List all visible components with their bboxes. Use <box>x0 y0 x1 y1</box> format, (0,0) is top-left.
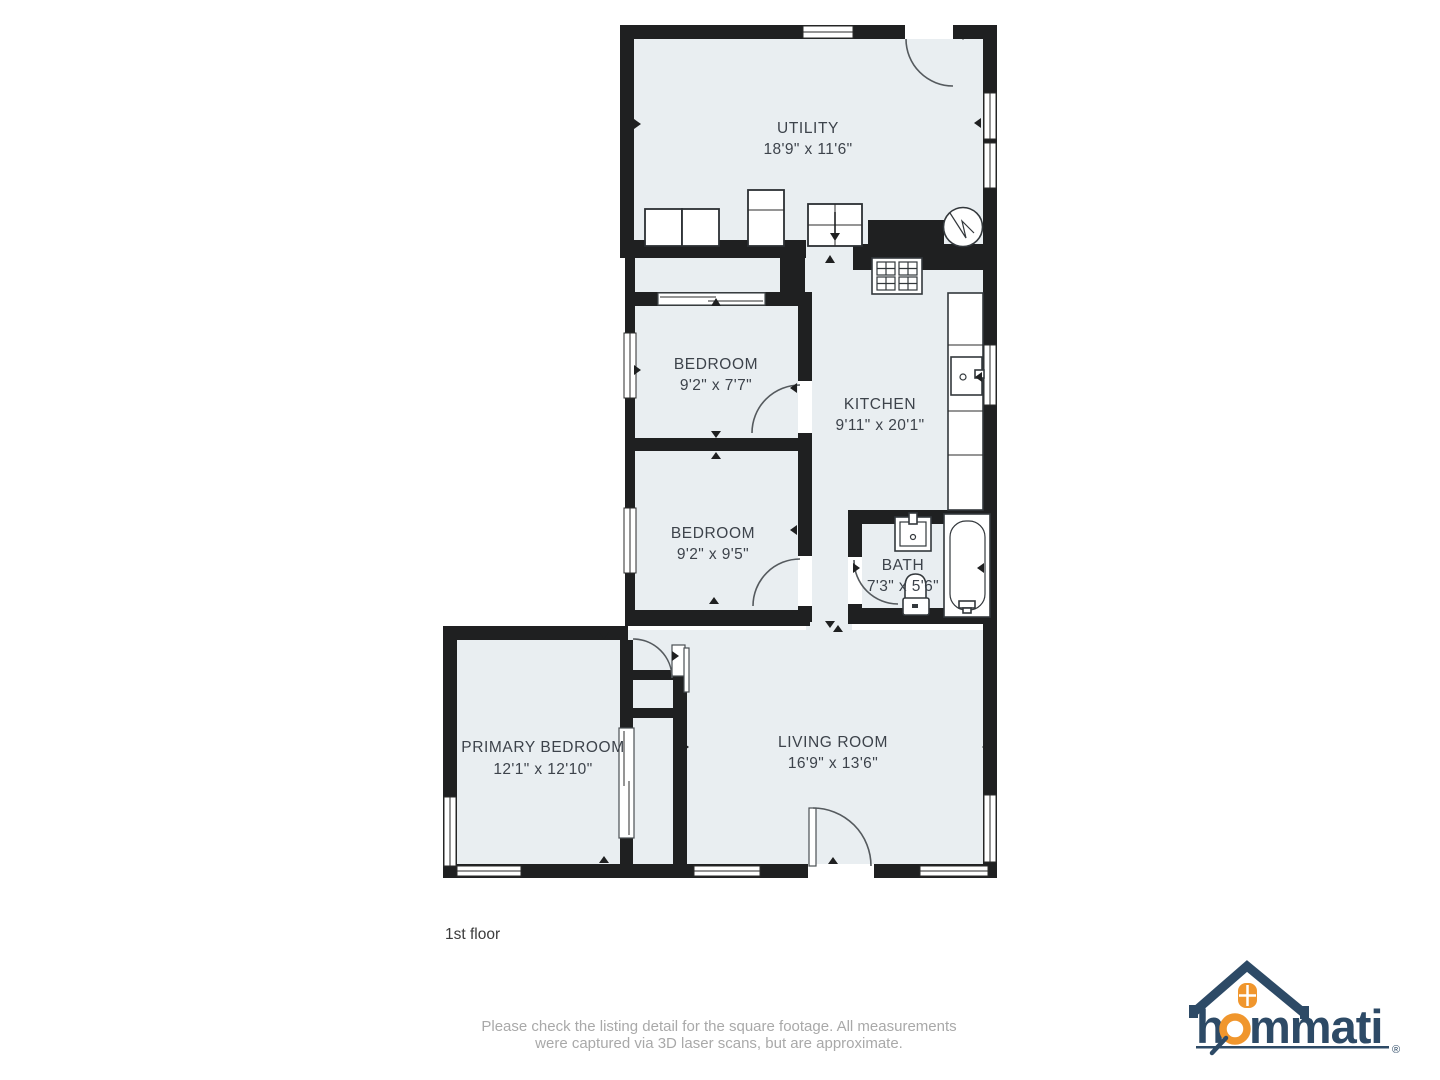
room-dims-kitchen: 9'11" x 20'1" <box>835 417 924 434</box>
kitchen-counter <box>948 293 983 510</box>
floor-plan-page: UTILITY 18'9" x 11'6" BEDROOM 9'2" x 7'7… <box>0 0 1440 1080</box>
room-label-kitchen: KITCHEN <box>844 396 916 413</box>
window <box>803 26 853 38</box>
window <box>920 866 988 876</box>
bath-sink <box>895 513 931 551</box>
stairs <box>808 204 862 246</box>
room-dims-bath: 7'3" x 5'6" <box>867 578 939 595</box>
room-label-living-room: LIVING ROOM <box>778 734 888 751</box>
logo-text-mmati: mmati <box>1249 1000 1382 1053</box>
refrigerator <box>748 190 784 246</box>
dryer <box>682 209 719 246</box>
room-label-utility: UTILITY <box>777 120 839 137</box>
room-dims-bedroom-1: 9'2" x 7'7" <box>680 377 752 394</box>
hallway-sliding-door <box>658 293 765 305</box>
room-label-bedroom-1: BEDROOM <box>674 356 758 373</box>
floor-label: 1st floor <box>445 926 500 943</box>
window <box>984 345 996 405</box>
room-label-bedroom-2: BEDROOM <box>671 525 755 542</box>
room-dims-primary-bedroom: 12'1" x 12'10" <box>493 761 592 778</box>
window <box>984 143 996 188</box>
room-dims-living-room: 16'9" x 13'6" <box>788 755 878 772</box>
hommati-logo: h mmati ® <box>1189 966 1400 1056</box>
stove <box>872 258 922 294</box>
window <box>984 795 996 862</box>
room-label-bath: BATH <box>882 557 925 574</box>
window <box>624 508 636 573</box>
washer <box>645 209 682 246</box>
floor-plan-svg: UTILITY 18'9" x 11'6" BEDROOM 9'2" x 7'7… <box>0 0 1440 1080</box>
disclaimer-line-1: Please check the listing detail for the … <box>481 1018 956 1035</box>
water-heater <box>944 208 983 247</box>
window <box>984 93 996 139</box>
utility-counter-dark <box>868 220 944 246</box>
disclaimer: Please check the listing detail for the … <box>481 1018 956 1052</box>
window <box>444 797 456 866</box>
room-label-primary-bedroom: PRIMARY BEDROOM <box>461 739 624 756</box>
logo-underline <box>1196 1046 1389 1049</box>
window <box>457 866 521 876</box>
registered-mark: ® <box>1392 1044 1400 1056</box>
room-dims-bedroom-2: 9'2" x 9'5" <box>677 546 749 563</box>
disclaimer-line-2: were captured via 3D laser scans, but ar… <box>534 1035 903 1052</box>
window <box>694 866 760 876</box>
room-dims-utility: 18'9" x 11'6" <box>763 141 852 158</box>
